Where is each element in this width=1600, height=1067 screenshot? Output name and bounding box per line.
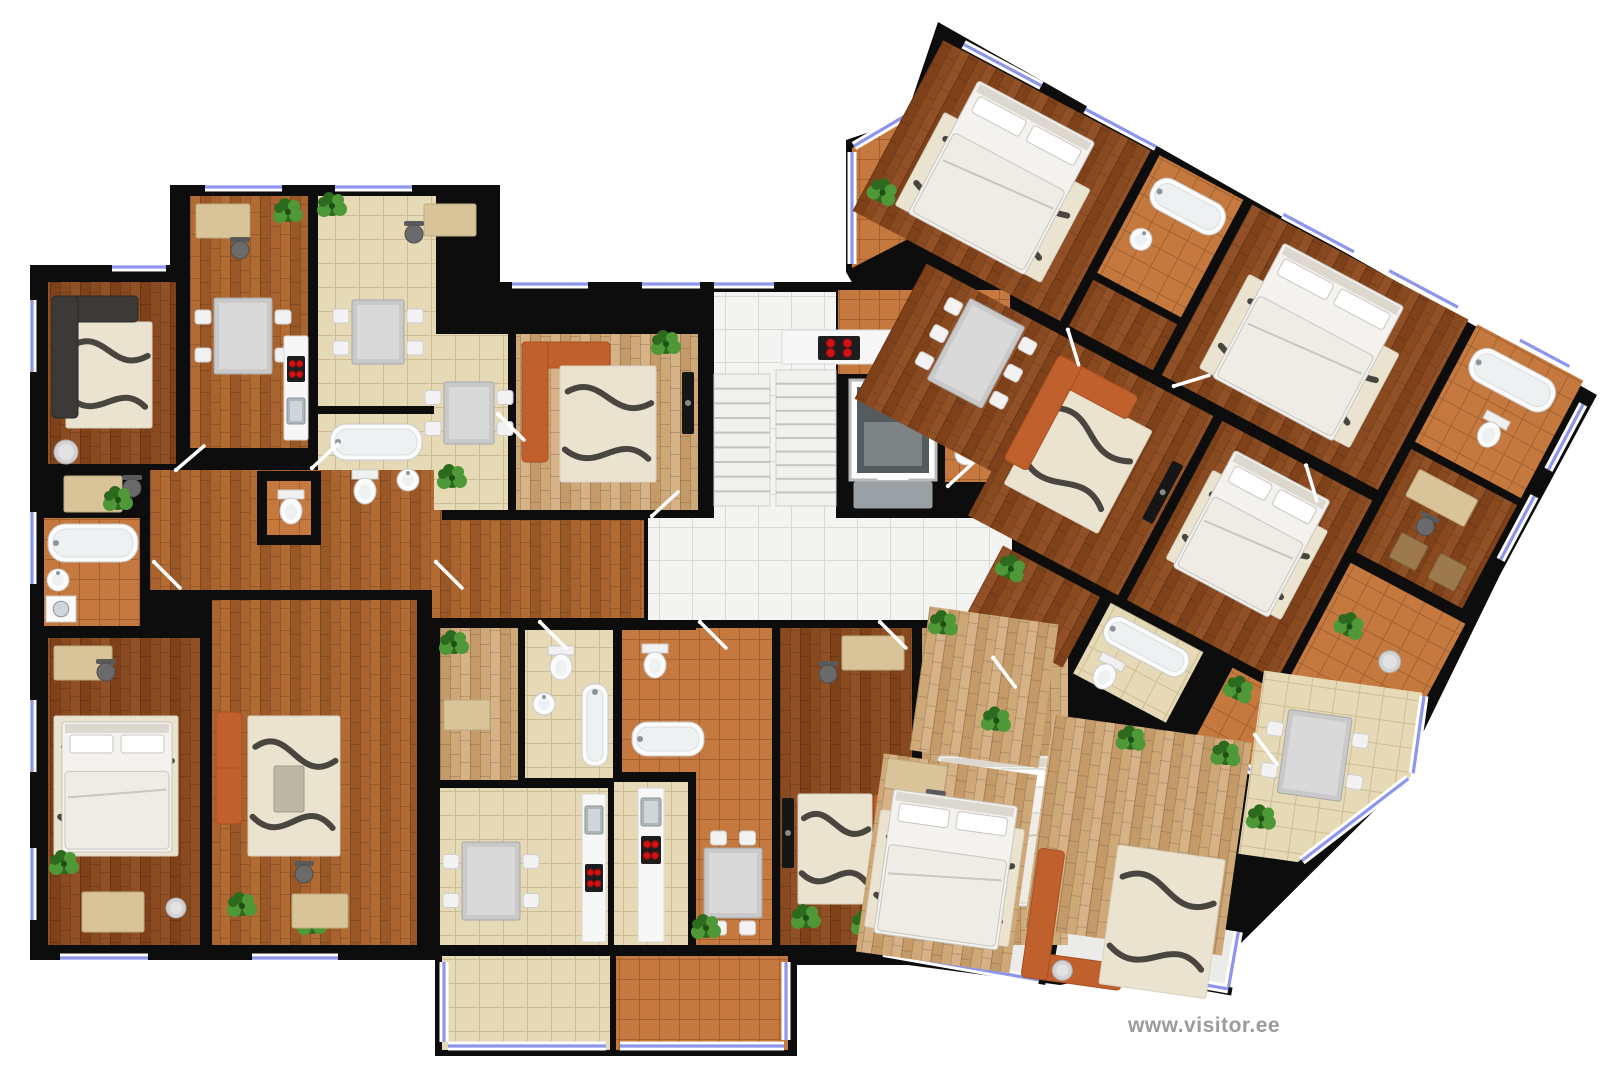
washing-machine — [46, 596, 76, 622]
door-hinge — [174, 468, 178, 472]
sink — [641, 798, 661, 826]
sink — [585, 806, 603, 834]
office-chair — [230, 237, 250, 259]
rug — [66, 322, 152, 428]
sofa — [216, 712, 242, 824]
door-hinge — [538, 620, 542, 624]
bathtub — [632, 722, 704, 756]
desk — [82, 892, 144, 932]
desk — [842, 636, 904, 670]
stove — [641, 836, 661, 864]
stair-landing — [714, 508, 836, 542]
door-hinge — [434, 560, 438, 564]
toilet — [352, 470, 378, 504]
toilet — [548, 646, 574, 680]
office-chair — [294, 861, 314, 883]
stove — [818, 336, 860, 360]
door-hinge — [650, 514, 654, 518]
elevator-lobby-pad — [854, 482, 932, 508]
toilet — [278, 490, 304, 524]
coffee-table — [274, 766, 304, 812]
door-hinge — [152, 560, 156, 564]
basin — [397, 469, 419, 491]
office-chair — [96, 659, 116, 681]
office-chair — [404, 221, 424, 243]
rug — [798, 794, 872, 904]
stove — [585, 864, 603, 892]
bed — [62, 722, 172, 852]
hall-left-corridor — [432, 520, 644, 618]
tv-stand — [682, 372, 694, 434]
sink — [287, 398, 305, 424]
balcony-bottom-1 — [442, 956, 610, 1050]
tv-stand — [782, 798, 794, 868]
staircase — [714, 374, 770, 506]
door-hinge — [698, 620, 702, 624]
bathtub — [582, 684, 608, 766]
watermark-text: www.visitor.ee — [1128, 1014, 1280, 1038]
door-hinge — [496, 412, 500, 416]
rug — [1099, 845, 1225, 999]
desk — [292, 894, 348, 928]
bathtub — [48, 524, 138, 562]
office-chair — [818, 661, 838, 683]
door-hinge — [946, 484, 950, 488]
desk — [444, 700, 490, 730]
basin — [533, 693, 555, 715]
balcony-bottom-2 — [616, 956, 788, 1050]
round-table — [54, 440, 78, 464]
door-hinge — [310, 466, 314, 470]
bed — [874, 789, 1018, 950]
floorplan-svg — [0, 0, 1600, 1067]
bathtub — [330, 424, 422, 460]
door-hinge — [878, 620, 882, 624]
rug — [560, 366, 656, 482]
toilet — [642, 644, 668, 678]
desk — [424, 204, 476, 236]
round-table — [166, 898, 186, 918]
stove — [287, 356, 305, 382]
desk — [196, 204, 250, 238]
floorplan-stage: www.visitor.ee — [0, 0, 1600, 1067]
basin — [47, 569, 69, 591]
staircase — [776, 370, 836, 506]
